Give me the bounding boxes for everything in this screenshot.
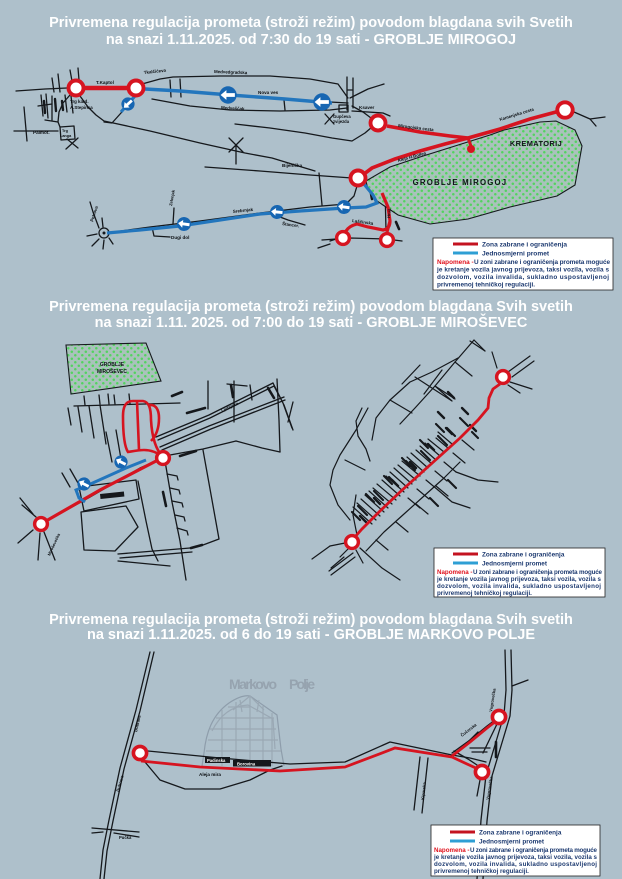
svg-text:Polje: Polje bbox=[289, 676, 315, 692]
svg-text:Pučka: Pučka bbox=[119, 835, 132, 840]
svg-text:Zona zabrane i ograničenja: Zona zabrane i ograničenja bbox=[482, 552, 565, 559]
svg-text:Dugi dol: Dugi dol bbox=[171, 235, 189, 240]
svg-text:dozvolom, vozila invalida, suk: dozvolom, vozila invalida, sukladno uspo… bbox=[434, 861, 597, 868]
svg-text:Napomena -: Napomena - bbox=[437, 259, 474, 266]
svg-text:Langa: Langa bbox=[60, 134, 72, 138]
svg-text:Jednosmjerni promet: Jednosmjerni promet bbox=[482, 251, 550, 258]
svg-text:U zoni zabrane i ograničenja p: U zoni zabrane i ograničenja prometa mog… bbox=[473, 569, 603, 576]
svg-text:na snazi 1.11.2025. od 7:30 d: na snazi 1.11.2025. od 7:30 do 19 sati -… bbox=[106, 32, 516, 48]
svg-text:privremenoj tehničkoj regulaci: privremenoj tehničkoj regulaciji. bbox=[437, 590, 532, 597]
svg-text:MIROŠEVEC: MIROŠEVEC bbox=[97, 367, 127, 375]
svg-text:privremenoj tehničkoj regulaci: privremenoj tehničkoj regulaciji. bbox=[434, 868, 529, 875]
svg-text:Zona zabrane i ograničenja: Zona zabrane i ograničenja bbox=[479, 830, 562, 837]
svg-text:U zoni zabrane i ograničenja p: U zoni zabrane i ograničenja prometa mog… bbox=[474, 259, 610, 266]
svg-text:Borovina: Borovina bbox=[237, 762, 256, 767]
svg-text:Ksaver: Ksaver bbox=[359, 105, 375, 110]
svg-text:T.Kaptol: T.Kaptol bbox=[96, 80, 114, 85]
svg-text:Markovo: Markovo bbox=[229, 676, 277, 692]
svg-text:je kretanje vozila javnog prij: je kretanje vozila javnog prijevoza, tak… bbox=[433, 854, 598, 861]
svg-text:U zoni zabrane i ograničenja p: U zoni zabrane i ograničenja prometa mog… bbox=[470, 847, 598, 854]
svg-text:je kretanje vozila javnog prij: je kretanje vozila javnog prijevoza, tak… bbox=[436, 267, 609, 274]
svg-text:Jednosmjerni promet: Jednosmjerni promet bbox=[479, 839, 545, 846]
svg-text:Jednosmjerni promet: Jednosmjerni promet bbox=[482, 561, 548, 568]
svg-text:je kretanje vozila javnog prij: je kretanje vozila javnog prijevoza, tak… bbox=[436, 576, 602, 583]
svg-text:Hruš.: Hruš. bbox=[386, 207, 392, 218]
svg-text:Trg kard.: Trg kard. bbox=[70, 99, 89, 104]
svg-text:GROBLJE: GROBLJE bbox=[100, 362, 125, 368]
svg-text:A.Stepinca: A.Stepinca bbox=[70, 105, 93, 110]
svg-text:Nova ves: Nova ves bbox=[258, 90, 279, 95]
svg-text:Privremena regulacija prometa: Privremena regulacija prometa (stroži re… bbox=[49, 299, 573, 315]
svg-text:Napomena -: Napomena - bbox=[434, 847, 469, 854]
svg-text:Zona zabrane i ograničenja: Zona zabrane i ograničenja bbox=[482, 242, 567, 249]
svg-text:Palmot.: Palmot. bbox=[33, 130, 50, 135]
svg-text:dozvolom, vozila invalida, suk: dozvolom, vozila invalida, sukladno uspo… bbox=[437, 583, 601, 590]
svg-text:Bijenička: Bijenička bbox=[282, 163, 303, 168]
svg-text:na snazi 1.11.2025. od 6 do 19: na snazi 1.11.2025. od 6 do 19 sati - GR… bbox=[87, 627, 535, 643]
svg-text:Trg: Trg bbox=[62, 129, 69, 133]
svg-text:KREMATORIJ: KREMATORIJ bbox=[510, 139, 562, 148]
svg-text:Aleja mira: Aleja mira bbox=[199, 772, 221, 777]
svg-text:dozvolom, vozila invalida, suk: dozvolom, vozila invalida, sukladno uspo… bbox=[437, 274, 609, 281]
svg-text:privremenoj tehničkoj regulaci: privremenoj tehničkoj regulaciji. bbox=[437, 282, 535, 289]
svg-text:zvijezda: zvijezda bbox=[333, 119, 350, 124]
svg-text:na snazi 1.11. 2025. od 7:00 d: na snazi 1.11. 2025. od 7:00 do 19 sati … bbox=[95, 313, 528, 331]
svg-text:Privremena regulacija prometa: Privremena regulacija prometa (stroži re… bbox=[49, 612, 573, 628]
svg-text:Privremena regulacija prometa: Privremena regulacija prometa (stroži re… bbox=[49, 15, 573, 31]
svg-text:GROBLJE MIROGOJ: GROBLJE MIROGOJ bbox=[413, 178, 508, 187]
svg-text:Padinska: Padinska bbox=[207, 758, 226, 763]
svg-text:Napomena -: Napomena - bbox=[437, 569, 472, 576]
